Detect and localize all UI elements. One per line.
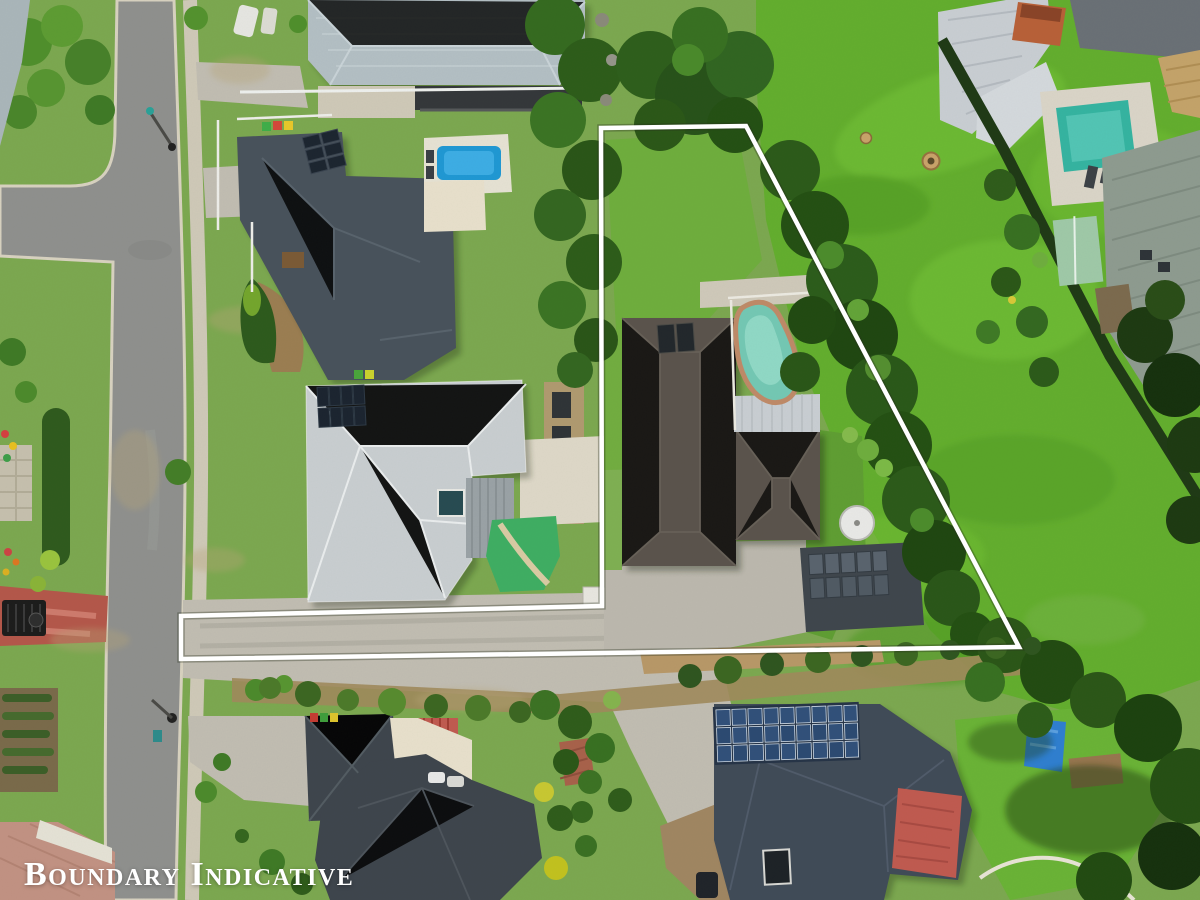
aerial-photo-canvas [0,0,1200,900]
boundary-watermark: Boundary Indicative [24,856,354,894]
aerial-photo: Boundary Indicative [0,0,1200,900]
